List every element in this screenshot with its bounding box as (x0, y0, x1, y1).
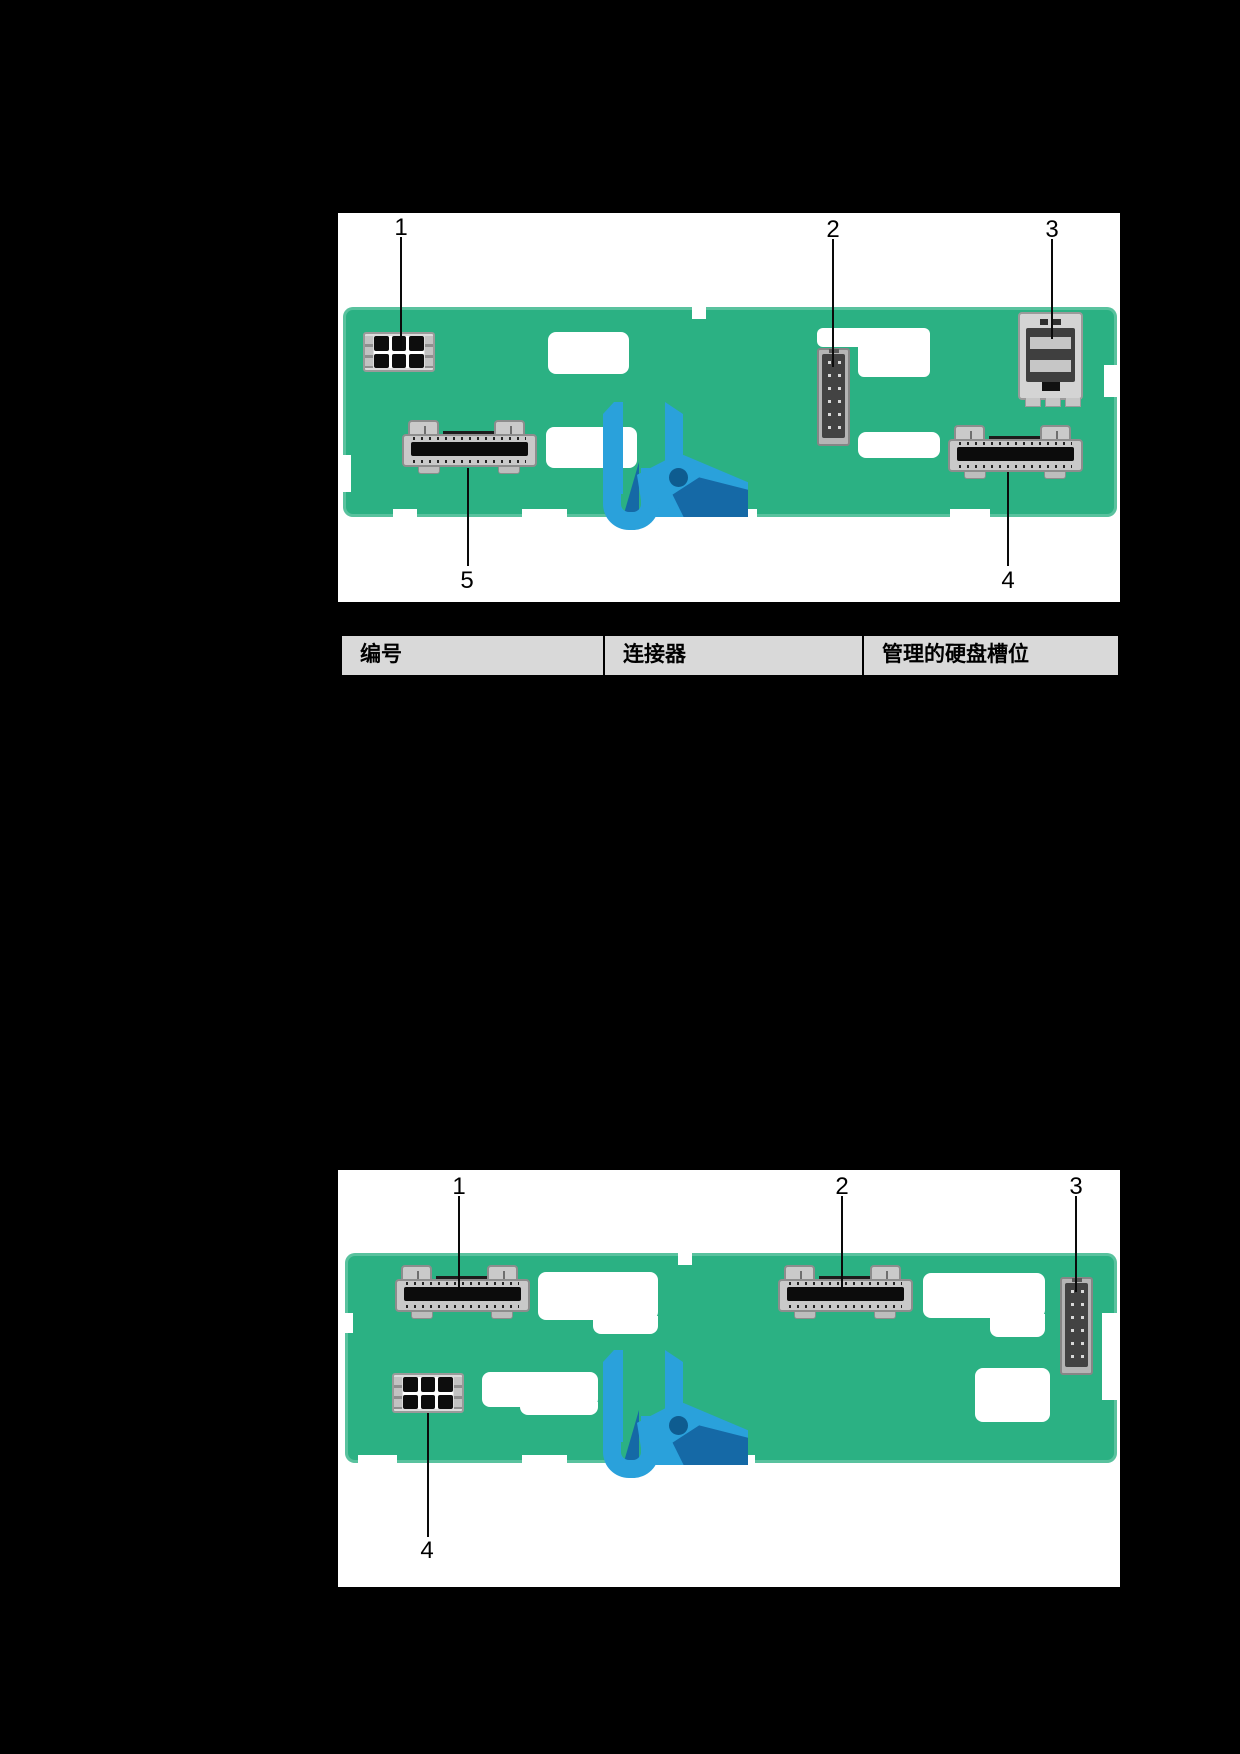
callout-label: 5 (460, 569, 473, 593)
connector-foot (874, 1312, 896, 1319)
board-cutout (990, 1314, 1045, 1337)
board-edge-notch (522, 1455, 567, 1463)
callout-label: 4 (420, 1539, 433, 1563)
connector-slot (411, 442, 528, 456)
connector-foot (1044, 472, 1066, 479)
connector-blade (1030, 360, 1071, 372)
board-edge-notch (345, 1313, 353, 1333)
connector-latch-slot (1042, 382, 1060, 391)
callout-label: 1 (452, 1175, 465, 1199)
release-latch (603, 1350, 753, 1482)
power-connector-pins (403, 1377, 453, 1409)
leader-line (1075, 1196, 1077, 1292)
table-header-cell: 编号 (342, 636, 603, 675)
board-cutout (858, 432, 940, 458)
board-edge-notch (522, 509, 567, 517)
callout-label: 3 (1069, 1175, 1082, 1199)
callout-label: 2 (826, 218, 839, 242)
leader-line (400, 237, 402, 350)
connector-foot (1065, 398, 1081, 407)
board-cutout (520, 1402, 598, 1415)
connector-foot (411, 1312, 433, 1319)
power-connector-rail (365, 336, 373, 368)
connector-foot (794, 1312, 816, 1319)
power-connector-rail (394, 1377, 402, 1409)
connector-pins (789, 1305, 902, 1308)
connector-foot (1045, 398, 1061, 407)
latch-strap-right (665, 1350, 683, 1426)
table-header-cell: 管理的硬盘槽位 (862, 636, 1118, 675)
leader-line (427, 1413, 429, 1537)
connector-foot (491, 1312, 513, 1319)
connector-slot (957, 447, 1074, 461)
board-cutout (858, 343, 930, 377)
callout-label: 2 (835, 1175, 848, 1199)
leader-line (467, 468, 469, 566)
board-cutout (593, 1316, 658, 1334)
release-latch (603, 402, 753, 534)
connector-slot (787, 1287, 904, 1301)
board-edge-notch (393, 509, 417, 517)
pin-header-shroud (1065, 1283, 1088, 1367)
leader-line (1007, 472, 1009, 566)
connector-pins (406, 1305, 519, 1308)
power-connector-rail (454, 1377, 462, 1409)
board-edge-notch (1102, 1313, 1117, 1400)
connector-pins (406, 1282, 519, 1285)
board-edge-notch (343, 455, 351, 492)
connector-pins (959, 442, 1072, 445)
leader-line (458, 1196, 460, 1290)
pin-column (838, 361, 841, 431)
latch-hole (669, 1416, 688, 1435)
sas-edge-connector (948, 425, 1083, 478)
leader-line (841, 1196, 843, 1287)
connector-foot (418, 467, 440, 474)
power-connector (392, 1373, 464, 1413)
pin-column (1081, 1290, 1084, 1360)
sas-edge-connector (778, 1265, 913, 1318)
board-edge-notch (1104, 365, 1117, 397)
latch-hole (669, 468, 688, 487)
sas-edge-connector (395, 1265, 530, 1318)
board-cutout (975, 1368, 1050, 1422)
connector-pins (413, 460, 526, 463)
connector-pins (959, 465, 1072, 468)
power-connector-rail (425, 336, 433, 368)
board-edge-notch (358, 1455, 397, 1463)
board-edge-notch (692, 307, 706, 319)
sas-edge-connector (402, 420, 537, 473)
connector-foot (1025, 398, 1041, 407)
callout-label: 3 (1045, 218, 1058, 242)
pin-column (1071, 1290, 1074, 1360)
power-connector-pins (374, 336, 424, 368)
figure-backplane-top: 1 2 3 5 4 (338, 213, 1120, 602)
connector-table-header: 编号 连接器 管理的硬盘槽位 (340, 634, 1120, 677)
connector-key (1053, 319, 1061, 325)
board-cutout (923, 1273, 1045, 1318)
connector-key (1040, 319, 1048, 325)
latch-strap-left (603, 1350, 623, 1442)
callout-label: 4 (1001, 569, 1014, 593)
connector-foot (498, 467, 520, 474)
leader-line (1051, 239, 1053, 339)
latch-strap-left (603, 402, 623, 494)
connector-pins (789, 1282, 902, 1285)
connector-foot (964, 472, 986, 479)
board-cutout (538, 1272, 658, 1320)
connector-pins (413, 437, 526, 440)
table-header-cell: 连接器 (603, 636, 862, 675)
callout-label: 1 (394, 216, 407, 240)
connector-slot (404, 1287, 521, 1301)
board-edge-notch (950, 509, 990, 517)
board-cutout (548, 332, 629, 374)
latch-strap-right (665, 402, 683, 478)
figure-backplane-bottom: 1 2 3 4 (338, 1170, 1120, 1587)
power-connector (363, 332, 435, 372)
pin-column (828, 361, 831, 431)
leader-line (832, 239, 834, 367)
board-edge-notch (678, 1253, 692, 1265)
manual-page: 1 2 3 5 4 编号 连接器 管理的硬盘槽位 (0, 0, 1240, 1754)
